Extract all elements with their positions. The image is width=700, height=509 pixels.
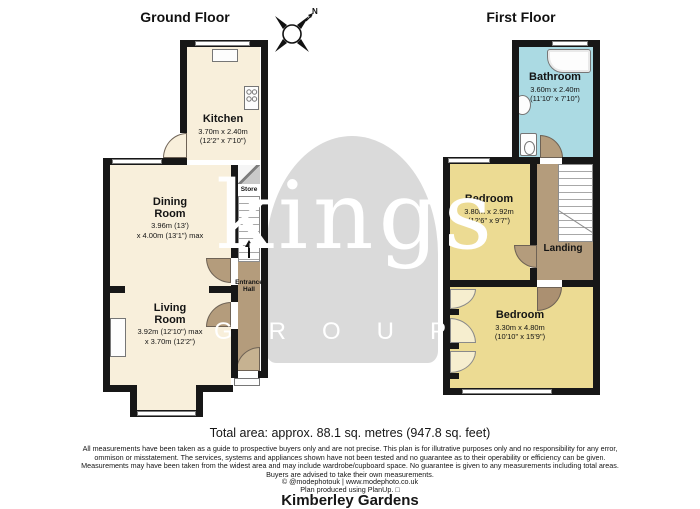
room-name: Living Room bbox=[144, 303, 196, 326]
watermark-group-text: GROUP bbox=[214, 318, 482, 346]
room-dims-metric: 3.92m (12'10") max bbox=[115, 327, 225, 337]
sink-unit bbox=[212, 49, 238, 62]
wardrobe-divider bbox=[450, 309, 459, 315]
window bbox=[195, 41, 250, 46]
wall-segment bbox=[258, 371, 268, 378]
wardrobe-divider bbox=[450, 373, 459, 379]
wall-segment bbox=[443, 280, 537, 287]
bathroom-label: Bathroom 3.60m x 2.40m (11'10" x 7'10") bbox=[500, 72, 610, 104]
wall-segment bbox=[512, 47, 519, 164]
living-room-label: Living Room 3.92m (12'10") max x 3.70m (… bbox=[115, 303, 225, 347]
compass-icon: N bbox=[268, 4, 318, 58]
property-name: Kimberley Gardens bbox=[0, 492, 700, 509]
room-dims-imperial: x 3.70m (12'2") bbox=[115, 337, 225, 347]
disclaimer-block: All measurements have been taken as a gu… bbox=[0, 445, 700, 479]
dining-room-label: Dining Room 3.96m (13') x 4.00m (13'1") … bbox=[115, 197, 225, 241]
room-dims-imperial: (11'10" x 7'10") bbox=[500, 94, 610, 104]
landing-label: Landing bbox=[528, 243, 598, 254]
room-name: Dining Room bbox=[144, 197, 196, 220]
ground-floor-title: Ground Floor bbox=[100, 9, 270, 25]
room-dims-metric: 3.70m x 2.40m bbox=[168, 127, 278, 137]
wall-segment bbox=[209, 286, 231, 293]
window bbox=[462, 389, 552, 394]
room-dims-imperial: x 4.00m (13'1") max bbox=[115, 231, 225, 241]
kitchen-label: Kitchen 3.70m x 2.40m (12'2" x 7'10") bbox=[168, 114, 278, 146]
toilet-bowl bbox=[524, 141, 535, 155]
wall-segment bbox=[103, 165, 110, 385]
room-name: Bathroom bbox=[500, 72, 610, 84]
bay-window bbox=[137, 411, 196, 416]
room-dims-metric: 3.96m (13') bbox=[115, 221, 225, 231]
room-dims-metric: 3.60m x 2.40m bbox=[500, 85, 610, 95]
room-name: Kitchen bbox=[168, 114, 278, 126]
bay-floor bbox=[137, 385, 196, 411]
wall-segment bbox=[103, 385, 137, 392]
wall-segment bbox=[562, 157, 593, 164]
wall-segment bbox=[519, 157, 540, 164]
wall-segment bbox=[231, 371, 238, 378]
wall-segment bbox=[103, 286, 125, 293]
front-step bbox=[234, 378, 260, 386]
watermark-kings-text: kings bbox=[216, 170, 497, 264]
bathtub bbox=[547, 49, 591, 73]
first-floor-title: First Floor bbox=[436, 9, 606, 25]
floorplan-image: Ground Floor First Floor N bbox=[0, 0, 700, 509]
wall-segment bbox=[562, 280, 593, 287]
wall-segment bbox=[196, 385, 233, 392]
window bbox=[552, 41, 588, 46]
toilet bbox=[520, 133, 537, 156]
entrance-hall-label: Entrance Hall bbox=[233, 279, 265, 294]
room-dims-imperial: (12'2" x 7'10") bbox=[168, 136, 278, 146]
total-area-text: Total area: approx. 88.1 sq. metres (947… bbox=[0, 426, 700, 440]
hob-rings-icon bbox=[245, 87, 258, 109]
window bbox=[112, 159, 162, 164]
compass-north-label: N bbox=[312, 7, 318, 16]
hob bbox=[244, 86, 259, 110]
